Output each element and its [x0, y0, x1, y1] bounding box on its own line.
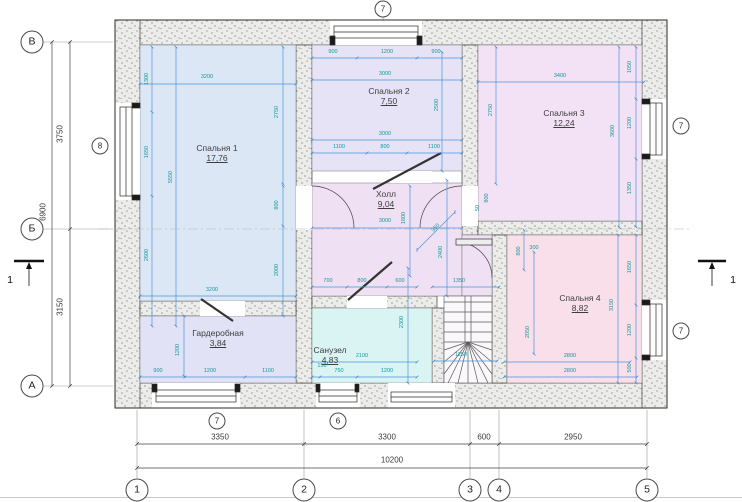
room-bedroom-1 [140, 45, 296, 301]
axis-bubble-А: А [21, 375, 44, 398]
room-bedroom-4 [507, 235, 642, 383]
axis-bubble-2: 2 [293, 479, 316, 502]
room-bedroom-3 [478, 45, 642, 221]
window-marker-6: 6 [330, 413, 347, 430]
window-marker-7: 7 [673, 323, 690, 340]
window-marker-7: 7 [673, 118, 690, 135]
axis-bubble-1: 1 [126, 479, 149, 502]
axis-bubble-3: 3 [459, 479, 482, 502]
rooms-layer [140, 45, 642, 383]
axis-bubble-5: 5 [636, 479, 659, 502]
axis-bubble-4: 4 [488, 479, 511, 502]
floor-plan-canvas: Спальня 117,76Спальня 27,50Спальня 312,2… [0, 0, 742, 502]
window-marker-7: 7 [209, 413, 226, 430]
room-wardrobe [140, 316, 296, 383]
window-marker-8: 8 [92, 138, 109, 155]
section-mark-label: 1 [7, 274, 13, 286]
room-bedroom-2 [312, 45, 462, 171]
room-hall [312, 183, 462, 296]
axis-bubble-Б: Б [21, 218, 44, 241]
section-mark-label: 1 [730, 274, 736, 286]
room-bathroom [312, 308, 432, 383]
floor-plan-drawing [0, 0, 742, 502]
axis-bubble-В: В [21, 31, 44, 54]
window-marker-7: 7 [375, 1, 392, 18]
